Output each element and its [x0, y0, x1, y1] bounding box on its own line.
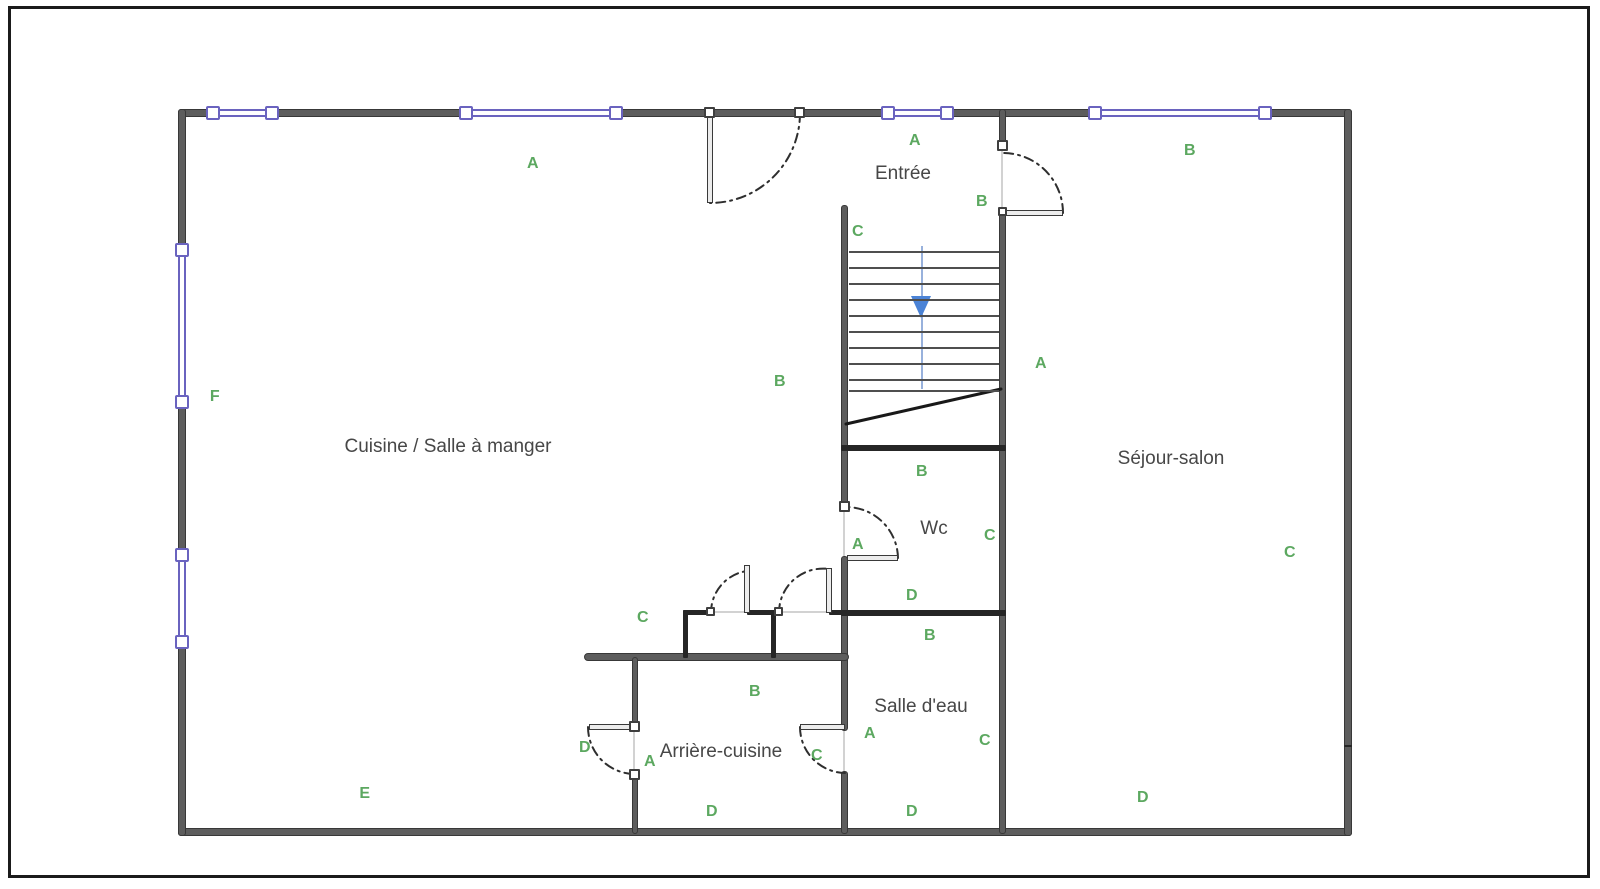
- marker-d: D: [906, 587, 918, 605]
- door-node: [629, 769, 640, 780]
- door-node: [704, 107, 715, 118]
- marker-d: D: [1137, 789, 1149, 807]
- stair-tread: [849, 331, 999, 333]
- stair-tread: [849, 347, 999, 349]
- marker-c: C: [811, 747, 823, 765]
- door-leaf-kitchen-entry[interactable]: [707, 117, 713, 203]
- marker-a: A: [909, 132, 921, 150]
- stair-tread: [849, 390, 999, 392]
- door-node: [998, 207, 1007, 216]
- door-leaf-wc[interactable]: [847, 555, 898, 561]
- marker-b: B: [976, 193, 988, 211]
- room-label-s-jour-salon: Séjour-salon: [1118, 448, 1225, 470]
- marker-a: A: [852, 536, 864, 554]
- stair-tread: [849, 251, 999, 253]
- floor-plan: AABBCBAFBCADCBBACCDAEDDDCCuisine / Salle…: [0, 0, 1600, 889]
- room-label-cuisine-salle-manger: Cuisine / Salle à manger: [345, 436, 552, 458]
- door-node: [706, 607, 715, 616]
- room-label-wc: Wc: [920, 518, 947, 540]
- stair-tread: [849, 379, 999, 381]
- marker-b: B: [924, 627, 936, 645]
- door-arc-arriere-cuisine: [588, 727, 635, 774]
- marker-c: C: [637, 609, 649, 627]
- door-swing-arcs-layer: [0, 0, 1600, 889]
- marker-f: F: [210, 388, 220, 406]
- room-label-entr-e: Entrée: [875, 163, 931, 185]
- marker-d: D: [906, 803, 918, 821]
- door-leaf-closet-2[interactable]: [826, 568, 832, 613]
- marker-e: E: [359, 785, 370, 803]
- door-leaf-closet-1[interactable]: [744, 565, 750, 613]
- door-leaf-entree-sejour[interactable]: [1005, 210, 1063, 216]
- door-node: [794, 107, 805, 118]
- marker-a: A: [864, 725, 876, 743]
- marker-d: D: [579, 739, 591, 757]
- door-node: [629, 721, 640, 732]
- marker-a: A: [527, 155, 539, 173]
- marker-c: C: [984, 527, 996, 545]
- stair-tread: [849, 315, 999, 317]
- door-arc-closet-2: [779, 569, 829, 613]
- room-label-salle-d-eau: Salle d'eau: [874, 696, 967, 718]
- marker-c: C: [1284, 544, 1296, 562]
- door-arc-entree-sejour: [1003, 153, 1063, 213]
- marker-a: A: [1035, 355, 1047, 373]
- stair-tread: [849, 363, 999, 365]
- marker-c: C: [852, 223, 864, 241]
- room-label-arri-re-cuisine: Arrière-cuisine: [660, 741, 782, 763]
- door-node: [997, 140, 1008, 151]
- marker-d: D: [706, 803, 718, 821]
- marker-c: C: [979, 732, 991, 750]
- stair-tread: [849, 267, 999, 269]
- door-arc-kitchen-entry: [710, 113, 800, 203]
- stair-tread: [849, 299, 999, 301]
- marker-b: B: [1184, 142, 1196, 160]
- door-leaf-salle-eau[interactable]: [800, 724, 845, 730]
- door-node: [774, 607, 783, 616]
- marker-b: B: [916, 463, 928, 481]
- door-node: [839, 501, 850, 512]
- door-arc-closet-1: [711, 571, 747, 613]
- stair-tread: [849, 283, 999, 285]
- stair-winder-line: [846, 389, 1001, 424]
- marker-b: B: [749, 683, 761, 701]
- marker-b: B: [774, 373, 786, 391]
- marker-a: A: [644, 753, 656, 771]
